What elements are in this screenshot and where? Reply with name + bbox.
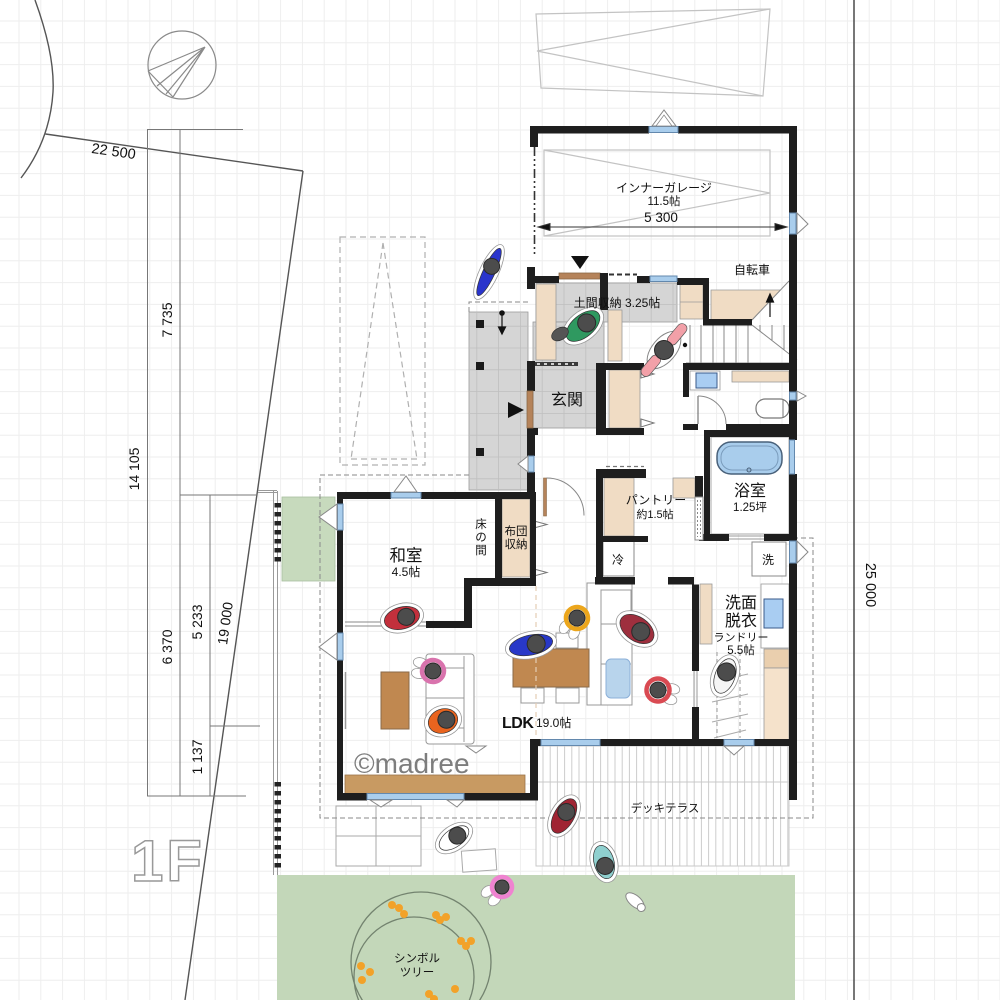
svg-text:インナーガレージ: インナーガレージ — [616, 181, 712, 195]
svg-text:洗面: 洗面 — [725, 594, 757, 612]
svg-text:19.0帖: 19.0帖 — [536, 715, 571, 730]
svg-text:洗: 洗 — [762, 553, 774, 567]
svg-text:1.25坪: 1.25坪 — [733, 501, 767, 514]
svg-text:ランドリー: ランドリー — [714, 632, 769, 644]
svg-text:1 137: 1 137 — [189, 739, 205, 774]
svg-text:パントリー: パントリー — [626, 493, 687, 507]
svg-text:布団: 布団 — [505, 525, 528, 538]
svg-text:和室: 和室 — [390, 546, 423, 565]
svg-text:7 735: 7 735 — [159, 302, 175, 337]
svg-text:脱衣: 脱衣 — [725, 612, 757, 630]
svg-text:11.5帖: 11.5帖 — [647, 194, 680, 208]
svg-text:5 233: 5 233 — [189, 604, 205, 639]
svg-text:5 300: 5 300 — [644, 210, 678, 225]
svg-text:1F: 1F — [131, 829, 205, 894]
svg-text:間: 間 — [475, 544, 487, 557]
svg-text:デッキテラス: デッキテラス — [631, 801, 700, 815]
svg-text:シンボル: シンボル — [394, 952, 440, 965]
svg-text:冷: 冷 — [612, 553, 624, 567]
svg-text:の: の — [475, 532, 487, 544]
svg-text:自転車: 自転車 — [734, 263, 770, 277]
svg-text:25 000: 25 000 — [862, 563, 878, 607]
svg-text:浴室: 浴室 — [734, 482, 766, 500]
svg-text:約1.5帖: 約1.5帖 — [636, 507, 673, 521]
svg-text:LDK: LDK — [502, 715, 534, 732]
svg-text:土間収納 3.25帖: 土間収納 3.25帖 — [574, 295, 661, 310]
svg-text:6 370: 6 370 — [159, 629, 175, 664]
svg-text:床: 床 — [475, 517, 487, 531]
svg-text:ツリー: ツリー — [400, 967, 435, 979]
svg-text:玄関: 玄関 — [551, 391, 583, 409]
svg-text:14 105: 14 105 — [126, 447, 142, 490]
svg-text:収納: 収納 — [505, 538, 528, 551]
svg-text:4.5帖: 4.5帖 — [392, 564, 421, 579]
svg-text:©madree: ©madree — [354, 748, 470, 779]
